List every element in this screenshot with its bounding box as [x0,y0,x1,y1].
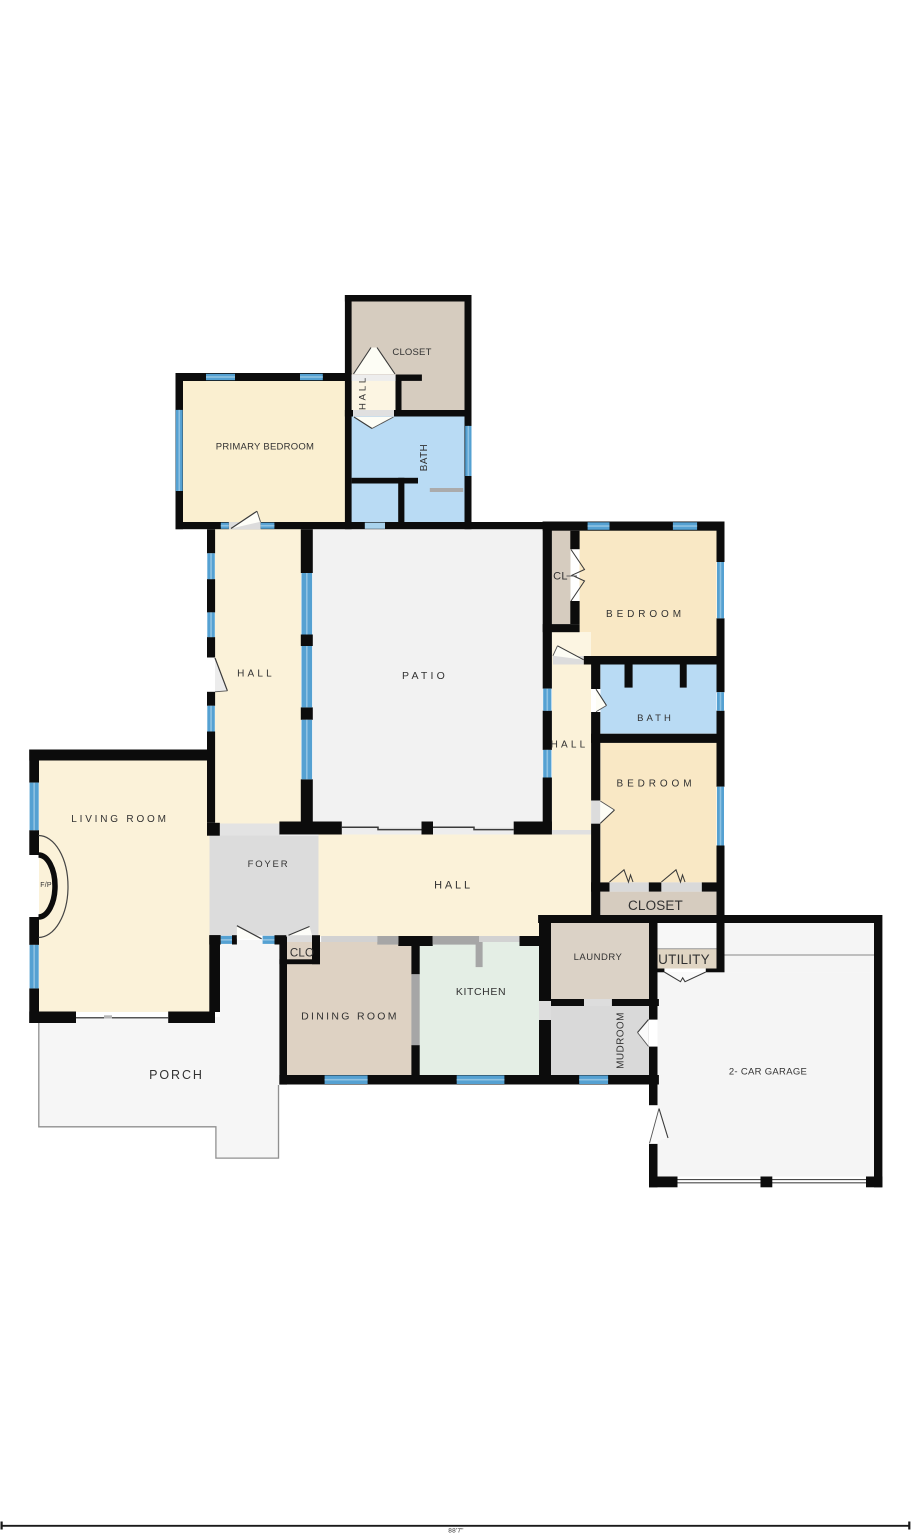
svg-text:CLOSET: CLOSET [628,898,683,913]
svg-text:F/P: F/P [40,882,52,889]
svg-text:HALL: HALL [358,375,369,410]
svg-text:UTILITY: UTILITY [658,952,710,967]
svg-text:MUDROOM: MUDROOM [616,1012,627,1069]
svg-text:88'7": 88'7" [448,1528,464,1535]
svg-text:KITCHEN: KITCHEN [456,986,506,998]
svg-text:DINING ROOM: DINING ROOM [301,1011,399,1023]
svg-text:BEDROOM: BEDROOM [606,609,685,620]
svg-text:PATIO: PATIO [402,670,448,682]
svg-text:HALL: HALL [551,740,589,751]
svg-text:HALL: HALL [434,880,473,892]
svg-text:CL: CL [553,571,568,583]
svg-text:2- CAR GARAGE: 2- CAR GARAGE [729,1066,807,1077]
svg-text:BEDROOM: BEDROOM [617,779,696,790]
svg-text:LIVING ROOM: LIVING ROOM [71,814,168,825]
svg-text:CLO: CLO [290,948,314,960]
svg-text:FOYER: FOYER [248,859,290,870]
svg-text:BATH: BATH [637,713,674,724]
svg-text:PORCH: PORCH [149,1068,204,1082]
svg-text:HALL: HALL [237,669,275,680]
svg-text:BATH: BATH [419,444,430,471]
svg-text:CLOSET: CLOSET [392,347,431,358]
svg-text:LAUNDRY: LAUNDRY [574,952,623,963]
svg-text:PRIMARY BEDROOM: PRIMARY BEDROOM [216,442,314,453]
